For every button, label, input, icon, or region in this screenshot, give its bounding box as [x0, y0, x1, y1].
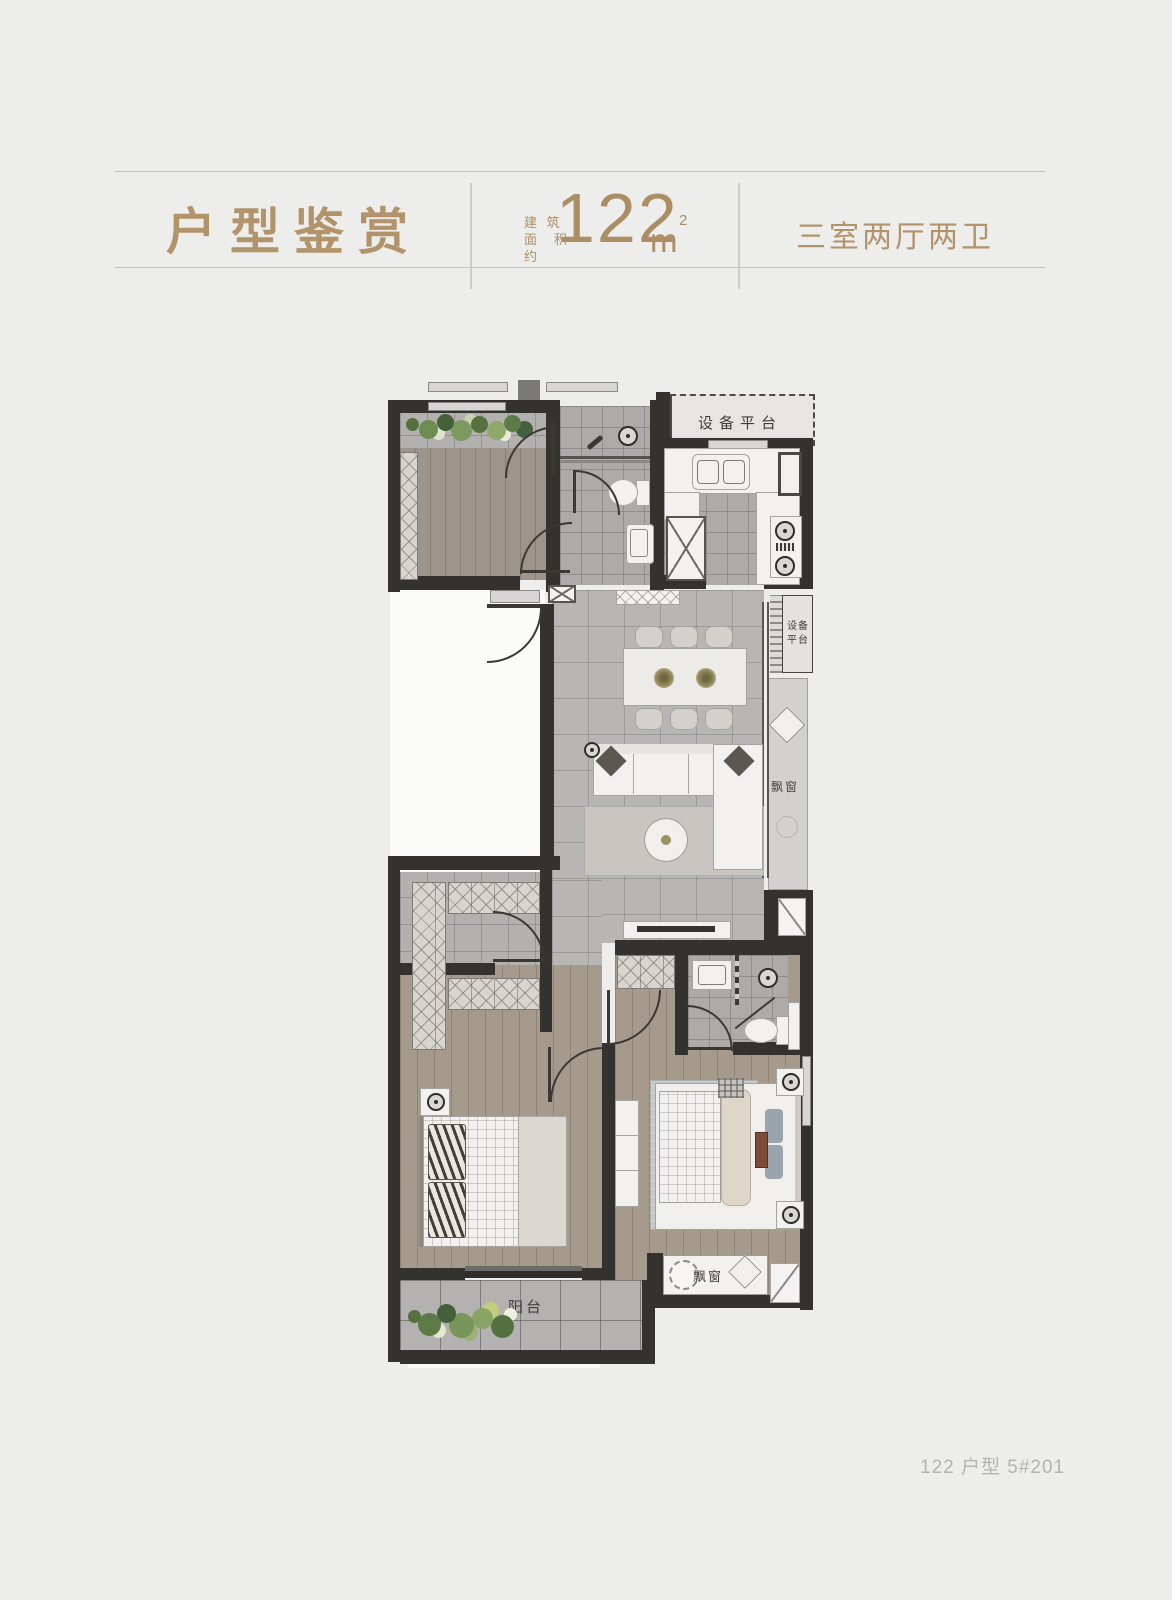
- area-unit: m: [650, 222, 678, 260]
- sink-basin-left: [697, 460, 719, 484]
- window-sill: [546, 382, 618, 392]
- nightstand: [776, 1068, 804, 1096]
- burner-icon: [775, 556, 795, 576]
- bedroom2-door-leaf: [548, 1047, 551, 1102]
- equipment-platform-side-l1: 设备: [787, 617, 809, 632]
- wall: [663, 1295, 768, 1308]
- dining-chair: [705, 626, 733, 648]
- lamp-icon: [782, 1073, 800, 1091]
- bathroom2-door-leaf: [687, 1047, 731, 1050]
- nightstand: [420, 1088, 450, 1116]
- wall: [540, 604, 554, 860]
- dining-chair: [635, 626, 663, 648]
- balcony-plants: [408, 1310, 421, 1323]
- sink-basin-right: [723, 460, 745, 484]
- equipment-platform-side: 设备 平台: [782, 595, 813, 673]
- bed2-runner: [518, 1116, 567, 1247]
- layout-spec: 三室两厅两卫: [796, 212, 994, 256]
- stove: [770, 516, 802, 578]
- floor-plan: 设备平台 设备 平台: [388, 392, 814, 1368]
- header-top-rule: [115, 171, 1045, 172]
- wall: [647, 1253, 663, 1308]
- flyer-page: { "header": { "title": "户型鉴赏", "area_lab…: [0, 0, 1172, 1600]
- tv: [637, 926, 715, 932]
- bath2-shelf: [788, 1002, 800, 1050]
- wall-jog: [518, 380, 540, 402]
- master-dresser: [615, 1100, 639, 1207]
- header-divider-1: [470, 183, 472, 289]
- window: [428, 402, 506, 411]
- nightstand: [776, 1201, 804, 1229]
- bay-window-right-label: 飘窗: [771, 778, 799, 795]
- planter-plants: [406, 418, 419, 431]
- footer-caption: 122 户型 5#201: [920, 1452, 1065, 1479]
- equipment-platform-label: 设备平台: [698, 412, 782, 433]
- shower-head-icon: [618, 426, 638, 446]
- shower-head-icon: [758, 968, 778, 988]
- coffee-table-decor: [661, 835, 671, 845]
- plate-icon: [654, 668, 674, 688]
- stove-grill: [776, 543, 794, 551]
- dining-chair: [635, 708, 663, 730]
- burner-icon: [775, 521, 795, 541]
- bath2-sink: [692, 960, 732, 990]
- hall-cabinet: [617, 955, 675, 989]
- sofa-seam: [688, 754, 689, 794]
- closet-wardrobe-top: [448, 882, 540, 914]
- wall: [400, 1268, 465, 1280]
- equipment-platform-side-l2: 平台: [787, 631, 809, 646]
- master-door-leaf: [607, 990, 610, 1043]
- sideboard: [616, 590, 680, 605]
- shaft-box: [666, 516, 706, 581]
- wall: [388, 400, 400, 592]
- bedroom2-wardrobe: [448, 978, 540, 1010]
- bedroom3-wardrobe: [400, 452, 418, 580]
- coffee-table: [644, 818, 688, 862]
- window-sill: [428, 382, 508, 392]
- dining-chair: [670, 708, 698, 730]
- wall: [388, 856, 400, 1362]
- toilet2-bowl: [744, 1018, 778, 1043]
- kitchen-sink: [692, 454, 750, 490]
- bed2-pillow: [428, 1182, 466, 1238]
- balcony-label: 阳台: [508, 1296, 544, 1317]
- entry-shaft-box: [548, 585, 576, 603]
- bay-decor: [776, 816, 798, 838]
- washer-cabinet: [626, 524, 654, 564]
- wall: [615, 940, 813, 955]
- fridge: [778, 452, 802, 496]
- sofa-seam: [633, 754, 634, 794]
- floor-lamp-icon: [584, 742, 600, 758]
- lamp-icon: [427, 1093, 445, 1111]
- louver-grille: [770, 595, 782, 673]
- dresser-divider: [615, 1170, 639, 1171]
- bedroom2-balcony-window: [465, 1266, 582, 1278]
- closet-wardrobe-left: [412, 882, 446, 1050]
- plate-icon: [696, 668, 716, 688]
- dresser-divider: [615, 1135, 639, 1136]
- bedroom3-door-leaf: [551, 422, 555, 476]
- wall: [400, 1350, 655, 1364]
- entry-door-leaf: [487, 604, 540, 608]
- dining-chair: [705, 708, 733, 730]
- bathroom1-door-leaf: [573, 470, 576, 513]
- bath2-basin: [698, 965, 726, 985]
- washer-inner: [630, 529, 648, 557]
- wall: [582, 1268, 615, 1280]
- dining-chair: [670, 626, 698, 648]
- plaid-throw: [718, 1078, 744, 1098]
- corner-sill: [770, 1263, 800, 1303]
- bay-window-bottom-label: 飘窗: [693, 1266, 723, 1285]
- dining-table: [623, 648, 747, 706]
- bedroom3-door2-leaf: [520, 570, 570, 573]
- master-duvet: [659, 1091, 721, 1203]
- master-blanket: [721, 1089, 751, 1206]
- area-exponent: 2: [679, 212, 687, 229]
- closet-door-leaf: [493, 959, 543, 962]
- header-divider-2: [738, 183, 740, 289]
- shower-glass-line: [560, 456, 650, 459]
- living-bay-window-line: [767, 602, 769, 878]
- shower-partition: [735, 955, 739, 1005]
- balcony-outer-sill: [408, 1364, 600, 1368]
- wall: [388, 856, 560, 870]
- corner-window-sill: [778, 898, 806, 936]
- page-title: 户型鉴赏: [166, 192, 422, 264]
- entry-threshold: [490, 590, 540, 603]
- lamp-icon: [782, 1206, 800, 1224]
- master-bench: [755, 1132, 768, 1168]
- bed2-pillow: [428, 1124, 466, 1180]
- header-bottom-rule: [115, 267, 1045, 268]
- toilet1-tank: [636, 480, 650, 506]
